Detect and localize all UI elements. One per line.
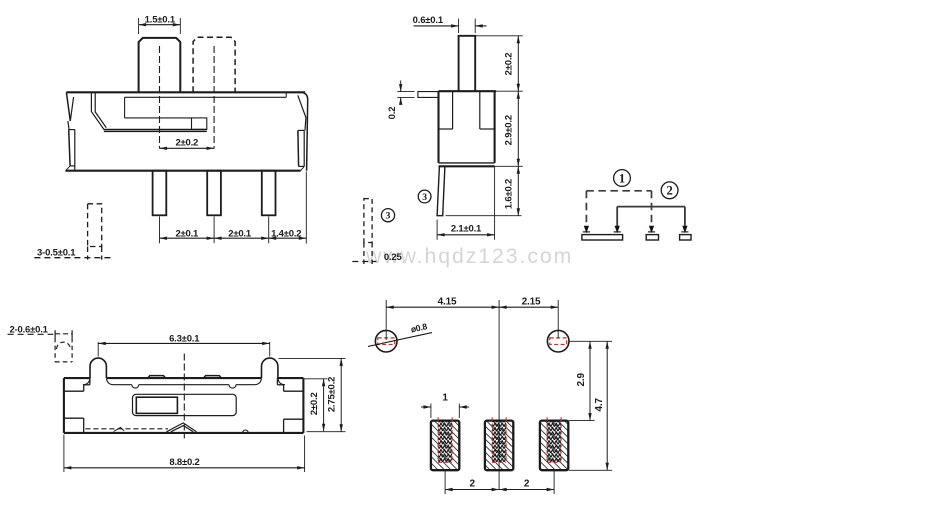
svg-text:4.7: 4.7 <box>594 398 605 412</box>
svg-text:3: 3 <box>422 192 427 203</box>
svg-text:2.75±0.2: 2.75±0.2 <box>327 377 338 412</box>
svg-text:2: 2 <box>524 479 530 490</box>
svg-text:4.15: 4.15 <box>438 296 457 307</box>
svg-text:2±0.1: 2±0.1 <box>175 228 199 239</box>
svg-text:6.3±0.1: 6.3±0.1 <box>169 334 200 345</box>
svg-text:0.25: 0.25 <box>384 252 403 263</box>
svg-text:1.5±0.1: 1.5±0.1 <box>145 14 176 25</box>
svg-text:0.2: 0.2 <box>387 107 398 120</box>
svg-text:2±0.2: 2±0.2 <box>175 138 198 149</box>
svg-text:1: 1 <box>442 393 448 404</box>
svg-text:2±0.2: 2±0.2 <box>309 392 320 415</box>
svg-text:2±0.2: 2±0.2 <box>503 53 514 76</box>
svg-text:2.9: 2.9 <box>576 373 587 387</box>
svg-text:8.8±0.2: 8.8±0.2 <box>169 457 199 468</box>
svg-text:0.6±0.1: 0.6±0.1 <box>413 15 444 26</box>
svg-text:1.6±0.2: 1.6±0.2 <box>503 179 514 209</box>
svg-text:3: 3 <box>386 211 391 222</box>
svg-text:2.9±0.2: 2.9±0.2 <box>503 115 514 145</box>
svg-text:2: 2 <box>666 184 672 198</box>
svg-text:2.1±0.1: 2.1±0.1 <box>451 224 482 235</box>
svg-text:1: 1 <box>619 171 625 185</box>
svg-text:2: 2 <box>470 479 476 490</box>
svg-text:2.15: 2.15 <box>522 296 541 307</box>
svg-text:1.4±0.2: 1.4±0.2 <box>271 228 301 239</box>
svg-text:3-0.5±0.1: 3-0.5±0.1 <box>37 248 76 259</box>
svg-text:2±0.1: 2±0.1 <box>228 228 252 239</box>
